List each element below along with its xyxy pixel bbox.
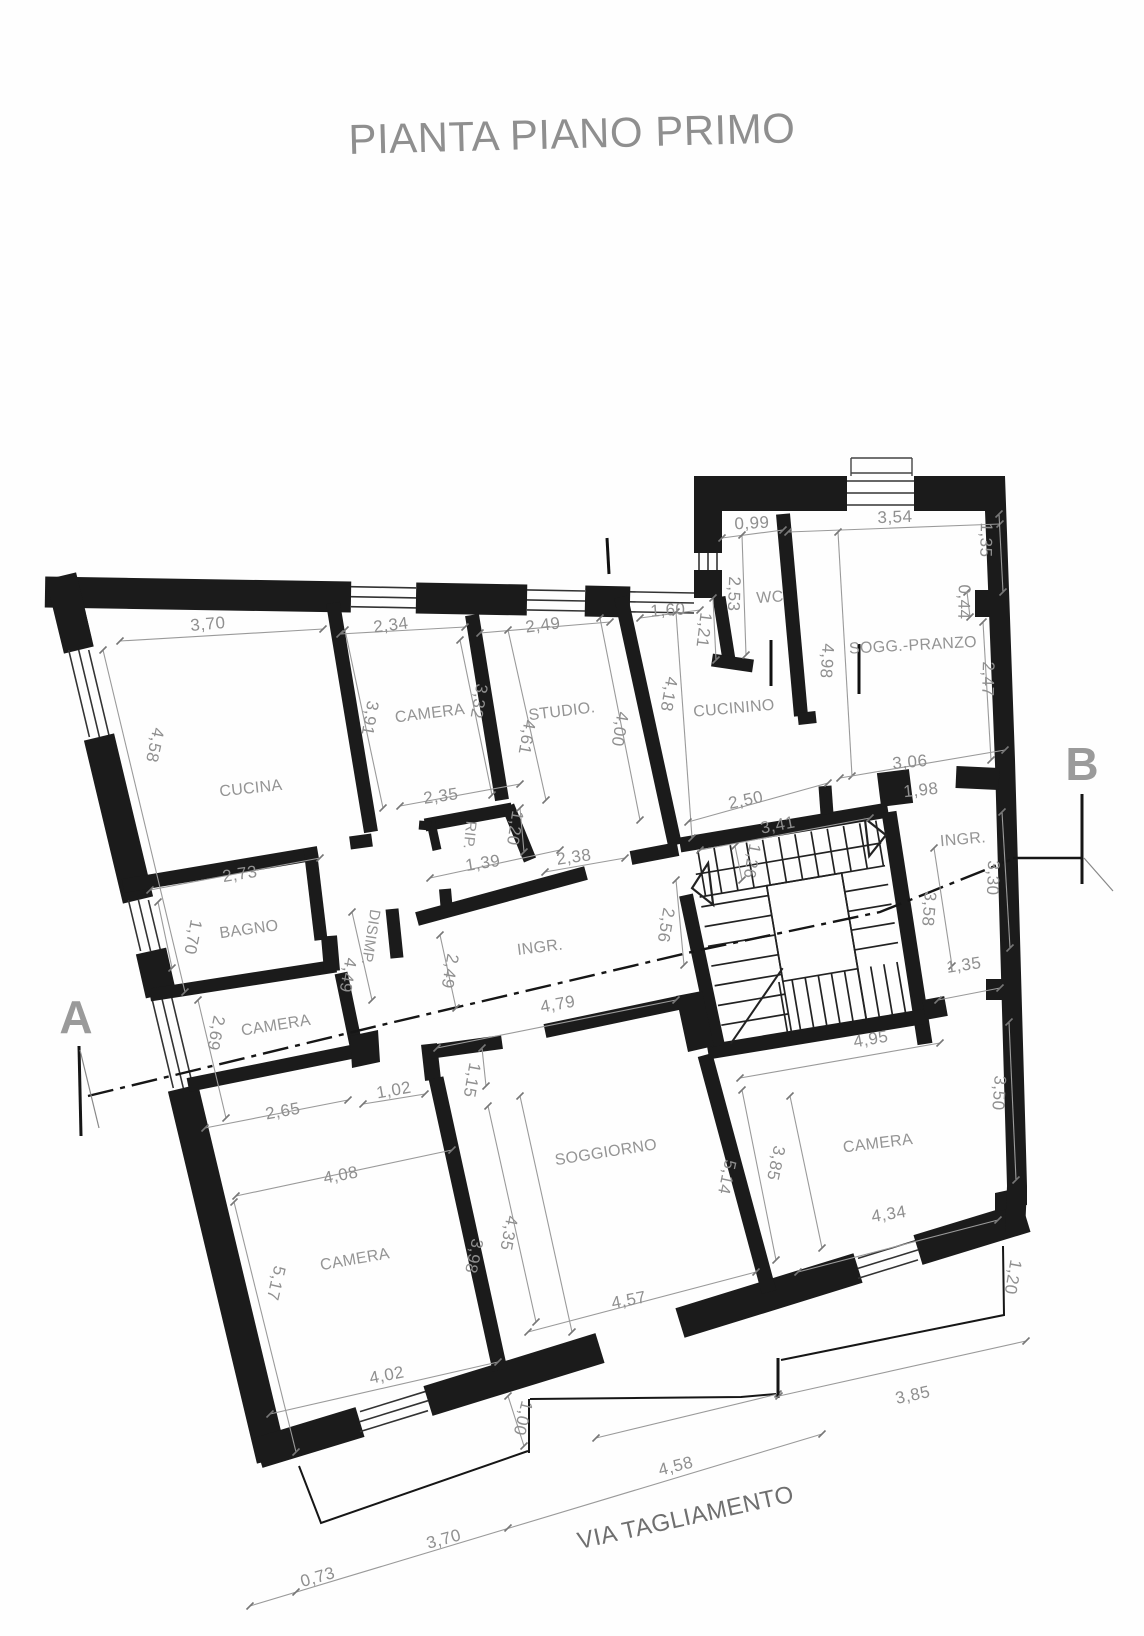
svg-text:WC: WC [756, 588, 784, 607]
svg-text:2,47: 2,47 [978, 661, 998, 696]
svg-text:3,06: 3,06 [892, 751, 929, 773]
svg-text:2,53: 2,53 [724, 576, 744, 612]
svg-text:A: A [59, 991, 92, 1043]
svg-text:3,70: 3,70 [190, 613, 227, 635]
svg-text:3,58: 3,58 [918, 891, 940, 928]
svg-text:3,50: 3,50 [988, 1075, 1009, 1111]
svg-text:3,30: 3,30 [983, 860, 1003, 896]
svg-text:1,60: 1,60 [650, 599, 686, 620]
svg-text:1,35: 1,35 [976, 522, 996, 557]
svg-text:1,98: 1,98 [902, 779, 939, 802]
svg-text:0,99: 0,99 [734, 513, 770, 534]
svg-text:0,44: 0,44 [954, 584, 974, 619]
svg-text:RIP.: RIP. [460, 820, 480, 850]
svg-text:3,54: 3,54 [877, 507, 913, 527]
svg-text:4,98: 4,98 [816, 643, 837, 679]
svg-text:B: B [1065, 738, 1098, 790]
